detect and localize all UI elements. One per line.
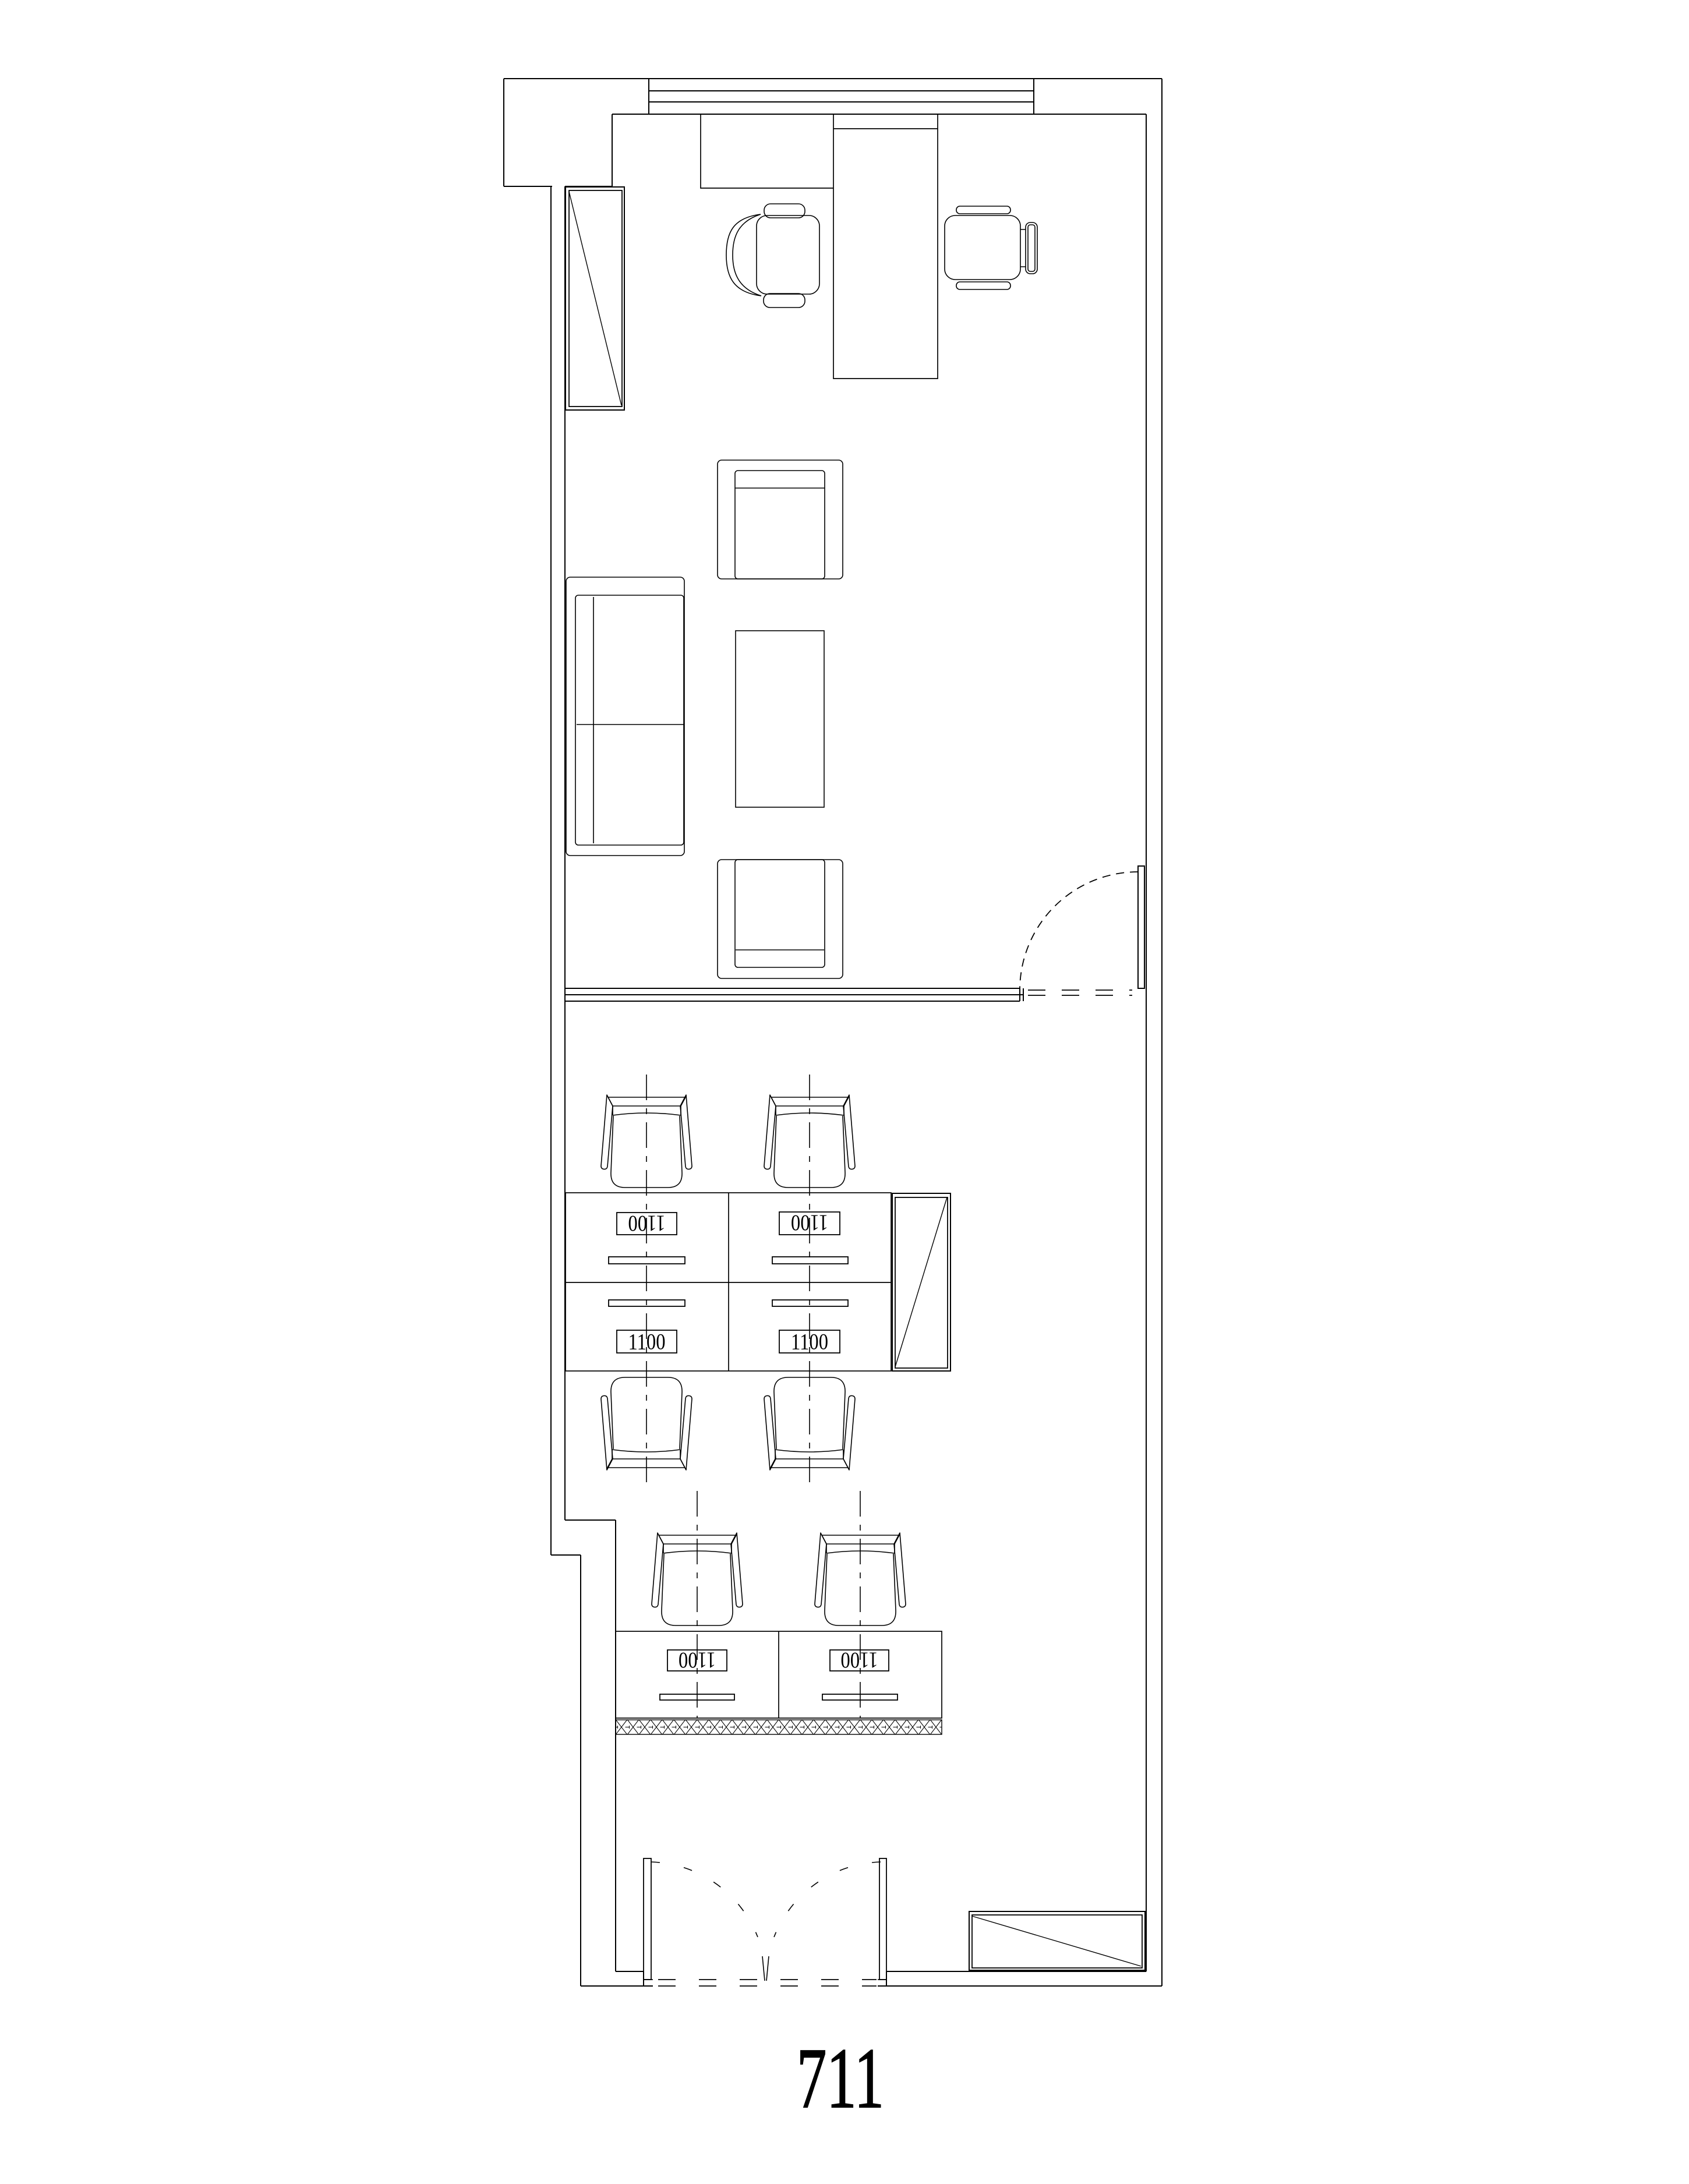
svg-text:1100: 1100 (841, 1648, 878, 1673)
svg-text:1100: 1100 (628, 1211, 666, 1236)
svg-text:1100: 1100 (791, 1210, 828, 1235)
svg-text:1100: 1100 (791, 1330, 828, 1355)
svg-text:1100: 1100 (628, 1330, 666, 1355)
svg-text:1100: 1100 (679, 1648, 716, 1673)
svg-text:711: 711 (797, 2031, 884, 2126)
